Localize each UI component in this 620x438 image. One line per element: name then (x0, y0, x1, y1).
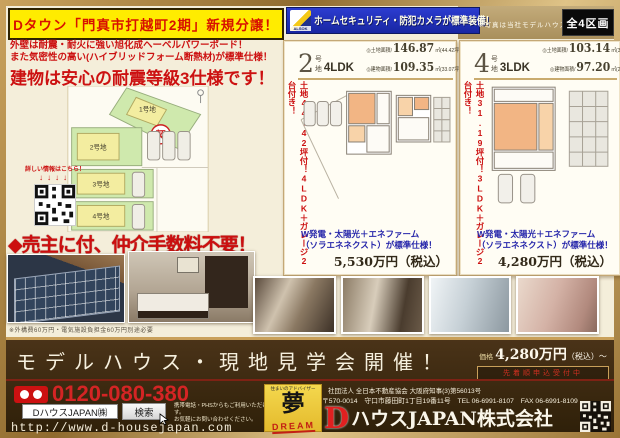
feature-line-2: また気密性の高い(ハイブリッドフォーム断熱材)が標準仕様！ (10, 52, 272, 64)
title-banner: Dタウン「門真市打越町2期」新規分譲！ (8, 8, 284, 40)
equipment-note: W発電・太陽光＋エネファーム （ソラエネネクスト）が標準仕様！ (477, 229, 613, 250)
second-floor-plan (569, 91, 608, 166)
garage-cars (498, 174, 535, 202)
first-floor-plan (492, 87, 555, 170)
car-icon (132, 172, 144, 197)
building-area-value: 97.20 (576, 60, 610, 74)
qr-caption: 詳しい情報はこちら！ (18, 164, 92, 173)
property-card-lot2: 2 号地 4LDK ◎土地面積/146.87㎡(44.42坪) ◎建物面積/10… (283, 40, 457, 276)
search-button[interactable]: 検索 (122, 403, 166, 420)
feature-line-1: 外壁は耐震・耐火に強い旭化成ヘーベルパワーボード！ (10, 40, 272, 52)
equipment-line-2: （ソラエネネクスト）が標準仕様！ (301, 240, 437, 251)
photo-caption: ※外構費60万円・電気施設負担金60万円別途必要 (9, 325, 153, 334)
layout-type: 3LDK (500, 62, 530, 74)
lot4-price: 4,280万円（税込） (498, 251, 612, 270)
photo-dining-room (253, 276, 336, 334)
photo-kitchen (128, 251, 255, 323)
contact-note-1: 携帯電話・PHSからもご利用いただけます。 (174, 403, 278, 417)
price-label: 価格 (479, 354, 493, 361)
interior-photo-strip (253, 276, 599, 334)
search-input[interactable]: DハウスJAPAN㈱ (22, 404, 118, 419)
equipment-note: W発電・太陽光＋エネファーム （ソラエネネクスト）が標準仕様！ (301, 229, 437, 250)
kitchen-cabinet (205, 256, 248, 308)
building-area-tsubo: ㎡(29.40坪) (611, 67, 620, 73)
dream-roman: DREAM (271, 420, 315, 434)
garage-cars (304, 101, 341, 125)
land-area-row: ◎土地面積/103.14㎡(31.19坪) (542, 39, 620, 56)
card-header: 2 号地 4LDK ◎土地面積/146.87㎡(44.42坪) ◎建物面積/10… (298, 43, 453, 80)
floor-plan-lot4 (476, 83, 616, 207)
price-tail: （税込）〜 (567, 352, 607, 361)
alsok-logo-icon: ALSOK (290, 10, 311, 31)
total-lots-badge: 全4区画 (562, 9, 614, 36)
footer-qr-code (580, 401, 611, 432)
lot-number: 2 (298, 51, 314, 77)
site-map-lot-2: 2号地 (72, 128, 191, 166)
lot-unit: 号地 (315, 54, 322, 74)
land-area-value: 146.87 (393, 41, 434, 55)
building-area-value: 109.35 (393, 60, 434, 74)
land-area-label: ◎土地面積/ (542, 48, 567, 54)
dream-logo: 住まいのアドバイザー 夢 DREAM (264, 384, 322, 432)
card-header: 4 号地 3LDK ◎土地面積/103.14㎡(31.19坪) ◎建物面積/97… (474, 43, 617, 80)
photo-bathroom (429, 276, 512, 334)
photo-bedroom (516, 276, 599, 334)
event-price-line: 価格4,280万円（税込）〜 (477, 344, 609, 364)
lot4-label: 4号地 (93, 212, 110, 221)
bottom-banner: モデルハウス・現地見学会開催！ 価格4,280万円（税込）〜 先着順申込受付中 … (6, 337, 614, 432)
land-area-row: ◎土地面積/146.87㎡(44.42坪) (366, 39, 460, 56)
first-floor-plan (347, 91, 392, 154)
land-area-label: ◎土地面積/ (366, 48, 391, 54)
lot2-label: 2号地 (90, 143, 107, 152)
land-area-tsubo: ㎡(31.19坪) (611, 48, 620, 54)
lot2-price: 5,530万円（税込） (334, 251, 448, 270)
area-figures: ◎土地面積/103.14㎡(31.19坪) ◎建物面積/97.20㎡(29.40… (542, 39, 620, 77)
building-area-label: ◎建物面積/ (550, 67, 575, 73)
equipment-line-1: W発電・太陽光＋エネファーム (477, 229, 613, 240)
lot-unit: 号地 (491, 54, 498, 74)
car-icon (132, 205, 144, 230)
land-area-value: 103.14 (569, 41, 610, 55)
qr-code (34, 184, 76, 226)
kitchen-window (177, 257, 199, 273)
building-area-row: ◎建物面積/97.20㎡(29.40坪) (550, 58, 620, 75)
feature-lines: 外壁は耐震・耐火に強い旭化成ヘーベルパワーボード！ また気密性の高い(ハイブリッ… (10, 40, 272, 63)
qr-info-block: 詳しい情報はこちら！ ↓↓↓↓ (18, 164, 92, 226)
open-house-headline: モデルハウス・現地見学会開催！ (16, 346, 451, 375)
solar-panel-grid (14, 266, 120, 323)
equipment-line-2: （ソラエネネクスト）が標準仕様！ (477, 240, 613, 251)
website-url[interactable]: http://www.d-housejapan.com (11, 421, 232, 435)
security-banner-text: ホームセキュリティ・防犯カメラが標準装備！ (314, 13, 494, 28)
lot3-label: 3号地 (93, 179, 110, 188)
photo-living-room (341, 276, 424, 334)
building-area-label: ◎建物面積/ (366, 67, 391, 73)
company-name-text: ハウスJAPAN株式会社 (351, 408, 553, 430)
flyer-body: Dタウン「門真市打越町2期」新規分譲！ ALSOK ホームセキュリティ・防犯カメ… (6, 6, 614, 432)
building-area-row: ◎建物面積/109.35㎡(33.07坪) (366, 58, 460, 75)
layout-type: 4LDK (324, 62, 354, 74)
area-figures: ◎土地面積/146.87㎡(44.42坪) ◎建物面積/109.35㎡(33.0… (366, 39, 460, 77)
property-card-lot4: 4 号地 3LDK ◎土地面積/103.14㎡(31.19坪) ◎建物面積/97… (459, 40, 620, 276)
event-price-box: 価格4,280万円（税込）〜 先着順申込受付中 (477, 344, 609, 380)
price-main: 4,280万円 (495, 347, 567, 363)
land-area-tsubo: ㎡(44.42坪) (435, 48, 461, 54)
freedial-icon (14, 386, 48, 403)
lot1-label: 1号地 (139, 105, 156, 114)
first-come-badge: 先着順申込受付中 (477, 366, 609, 380)
association-license: 社団法人 全日本不動産協会 大阪府知事(3)第56013号 (328, 385, 481, 395)
floor-plan-lot2 (298, 85, 452, 203)
security-banner: ALSOK ホームセキュリティ・防犯カメラが標準装備！ (286, 7, 480, 34)
company-name: DハウスJAPAN株式会社 (324, 401, 553, 435)
second-floor-plan (396, 95, 430, 142)
site-diagram (434, 97, 450, 142)
car-icons (147, 132, 190, 160)
title-banner-text: Dタウン「門真市打越町2期」新規分譲！ (13, 14, 279, 34)
equipment-line-1: W発電・太陽光＋エネファーム (301, 229, 437, 240)
dream-kanji: 夢 (265, 392, 321, 416)
kitchen-counter (137, 293, 209, 319)
flyer-page: Dタウン「門真市打越町2期」新規分譲！ ALSOK ホームセキュリティ・防犯カメ… (0, 0, 620, 438)
photo-solar-panels (7, 254, 125, 323)
company-logo-d: D (324, 401, 349, 435)
lot-number: 4 (474, 51, 490, 77)
qr-arrows: ↓↓↓↓ (18, 173, 92, 182)
alsok-logo-text: ALSOK (290, 26, 311, 31)
building-area-tsubo: ㎡(33.07坪) (435, 67, 461, 73)
search-button-label: 検索 (134, 405, 153, 419)
